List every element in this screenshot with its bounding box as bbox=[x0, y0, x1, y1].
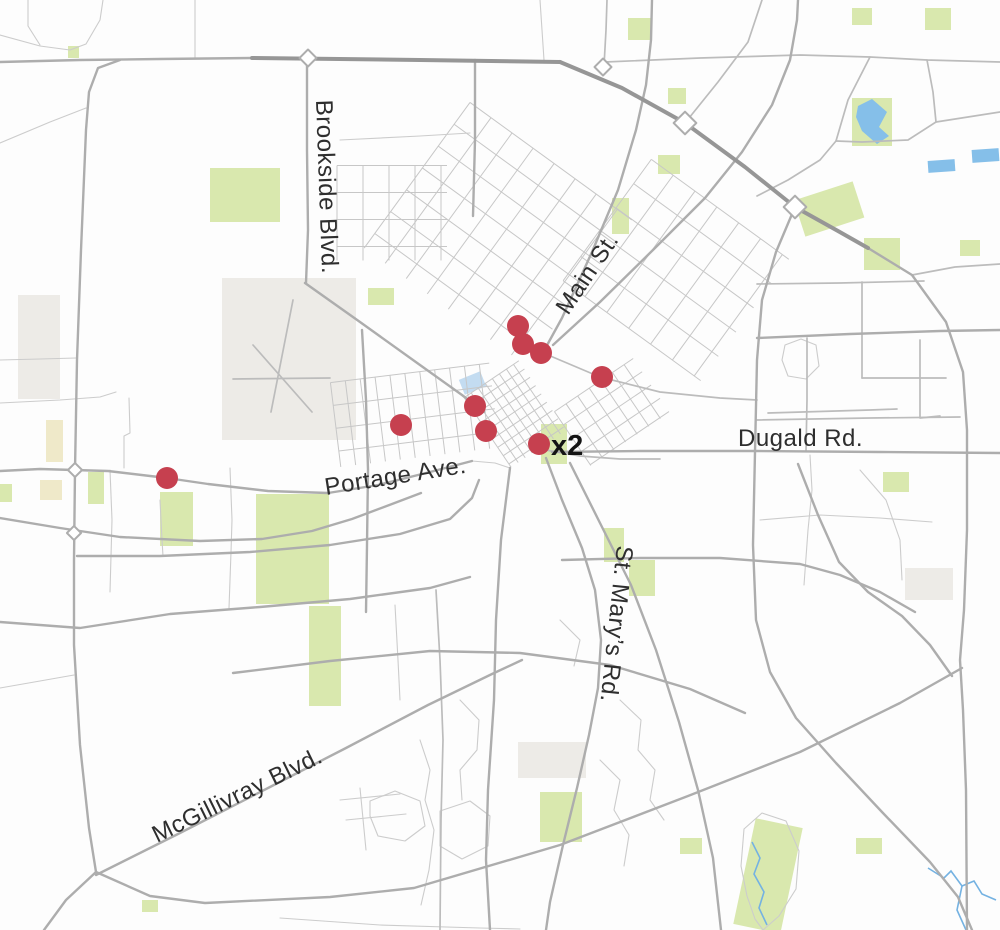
incident-marker bbox=[591, 366, 613, 388]
park-area bbox=[883, 472, 909, 492]
incident-marker bbox=[390, 414, 412, 436]
park-area bbox=[856, 838, 882, 854]
marker-multiplier-label: x2 bbox=[551, 430, 583, 462]
park-area bbox=[309, 606, 341, 706]
park-area bbox=[368, 288, 394, 305]
park-area bbox=[628, 18, 652, 40]
street-map: Brookside Blvd.Main St.Dugald Rd.Portage… bbox=[0, 0, 1000, 930]
park-area bbox=[142, 900, 158, 912]
medium-road bbox=[233, 378, 330, 379]
water-area bbox=[928, 159, 956, 173]
builtup-pale-area bbox=[40, 480, 62, 500]
park-area bbox=[540, 792, 582, 842]
park-area bbox=[0, 484, 12, 502]
incident-marker bbox=[475, 420, 497, 442]
incident-marker bbox=[156, 467, 178, 489]
incident-marker bbox=[464, 395, 486, 417]
park-area bbox=[658, 155, 680, 174]
park-area bbox=[960, 240, 980, 256]
park-area bbox=[210, 168, 280, 222]
park-area bbox=[925, 8, 951, 30]
builtup-area bbox=[18, 295, 60, 399]
builtup-area bbox=[222, 278, 356, 440]
water-area bbox=[972, 148, 1000, 163]
park-area bbox=[852, 8, 872, 25]
map-canvas: Brookside Blvd.Main St.Dugald Rd.Portage… bbox=[0, 0, 1000, 930]
park-area bbox=[680, 838, 702, 854]
builtup-area bbox=[518, 742, 586, 778]
street-label-dugald: Dugald Rd. bbox=[738, 425, 863, 452]
incident-marker bbox=[530, 342, 552, 364]
park-area bbox=[668, 88, 686, 104]
park-area bbox=[88, 472, 104, 504]
builtup-pale-area bbox=[46, 420, 63, 462]
major-road bbox=[306, 58, 308, 283]
builtup-area bbox=[905, 568, 953, 600]
park-area bbox=[160, 492, 193, 546]
incident-marker bbox=[528, 433, 550, 455]
